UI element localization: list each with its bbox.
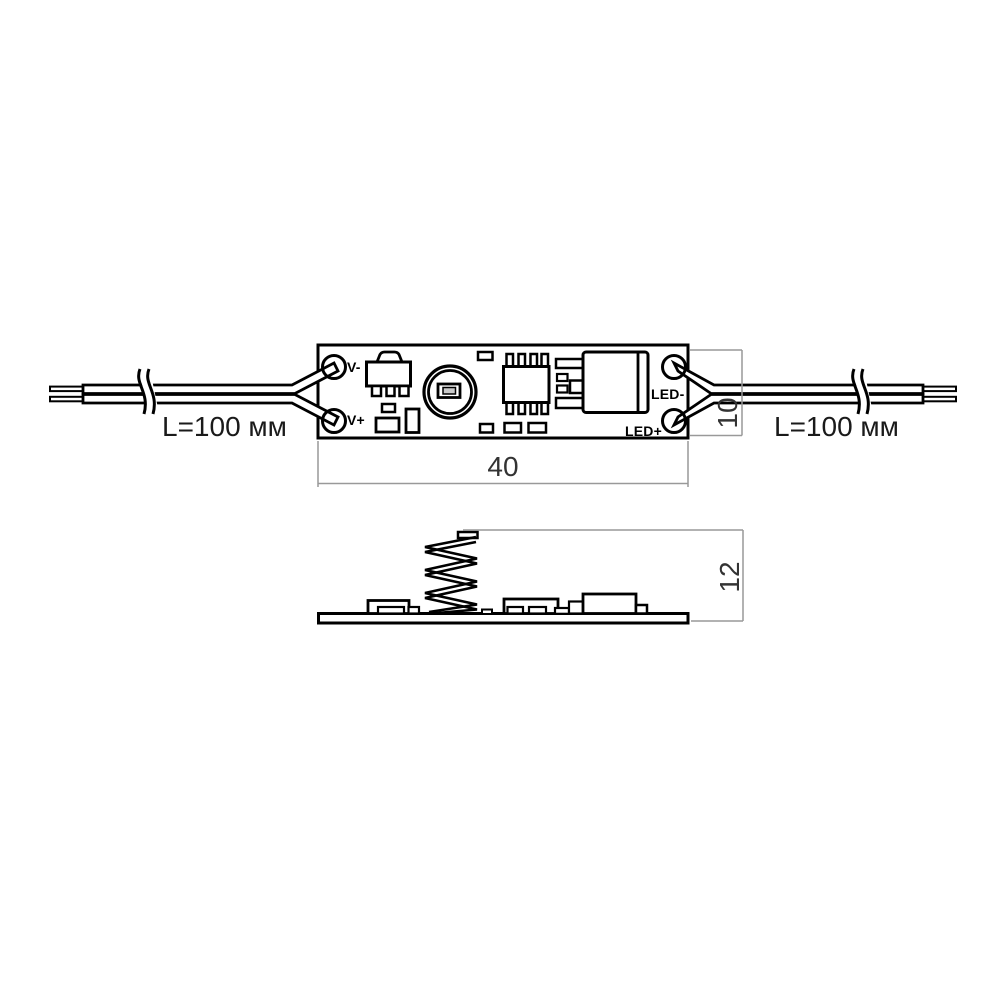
smd-side (482, 610, 492, 615)
pad-label-led-minus: LED- (651, 387, 684, 401)
transistor-body (367, 362, 411, 386)
drawing-linework (0, 0, 1000, 1000)
indicator-led-window (443, 388, 456, 395)
side-view (319, 530, 744, 623)
wire-strand (674, 363, 923, 394)
smd-resistor (478, 352, 493, 360)
smd-resistor (557, 374, 568, 381)
ic-side-leg (508, 607, 524, 614)
smd-resistor (529, 423, 547, 433)
smd-resistor (557, 386, 568, 393)
left-wire-length-label: L=100 мм (162, 413, 287, 441)
pad-label-led-plus: LED+ (625, 424, 662, 438)
smd-capacitor (376, 418, 399, 432)
pad-label-v-plus: V+ (347, 413, 365, 427)
module-height-dimension: 12 (715, 547, 745, 607)
transistor-leg (372, 386, 381, 396)
wire-tip (50, 387, 84, 392)
smd-resistor (505, 423, 522, 433)
connector-pin (556, 359, 584, 368)
wire-tip (50, 397, 84, 402)
connector-pin (570, 381, 584, 394)
smd-side (569, 602, 583, 614)
pad-label-v-minus: V- (347, 360, 361, 374)
pcb-side-outline (319, 614, 689, 624)
transistor-leg (387, 386, 395, 396)
transistor-side-leg (378, 607, 404, 614)
connector-side-body (583, 594, 636, 614)
technical-drawing: V- V+ LED- LED+ L=100 мм L=100 мм 40 10 … (0, 0, 1000, 1000)
ic-body (504, 367, 550, 403)
smd-resistor (480, 424, 493, 433)
smd-capacitor (406, 409, 419, 433)
wire-tip (922, 397, 956, 402)
touch-spring (425, 532, 478, 613)
board-height-dimension: 10 (713, 383, 743, 443)
smd-side (555, 608, 569, 614)
right-wire-length-label: L=100 мм (774, 413, 899, 441)
connector-pin (556, 398, 584, 408)
ic-side-leg (529, 607, 546, 614)
ic-chip (504, 354, 550, 414)
board-width-dimension: 40 (478, 452, 528, 482)
connector-side-tab (636, 605, 647, 614)
smd-side (409, 607, 420, 614)
transistor-leg (400, 386, 409, 396)
connector (556, 352, 648, 413)
smd-resistor (382, 404, 395, 412)
wire-tip (922, 387, 956, 392)
wire-strand (83, 363, 338, 394)
components-side-view (368, 594, 647, 614)
